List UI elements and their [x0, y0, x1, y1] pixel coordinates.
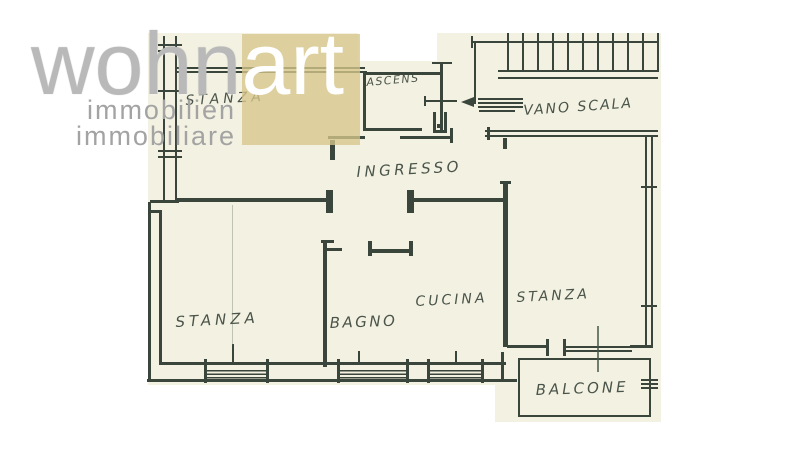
- room-label-stanza-left: STANZA: [175, 309, 259, 331]
- stair-tread: [582, 33, 584, 72]
- wall-segment: [363, 72, 366, 131]
- wall-segment: [474, 42, 476, 104]
- wall-segment: [641, 305, 657, 307]
- wall-segment: [641, 186, 657, 188]
- logo-wordmark-accent: art: [241, 14, 344, 113]
- wall-segment: [546, 339, 549, 356]
- wall-segment: [485, 135, 658, 137]
- wall-segment: [433, 130, 447, 133]
- stair-tread: [642, 33, 644, 72]
- wall-segment: [472, 41, 658, 43]
- wall-segment: [641, 379, 658, 381]
- wall-segment: [358, 351, 360, 363]
- logo-subtitle-italian: immobiliare: [40, 123, 236, 150]
- wall-segment: [507, 345, 547, 348]
- wall-segment: [565, 346, 632, 348]
- stair-tread: [597, 33, 599, 72]
- wall-segment: [455, 351, 457, 363]
- wall-segment: [232, 344, 234, 363]
- wall-segment: [148, 202, 151, 382]
- wall-segment: [437, 124, 443, 128]
- wall-segment: [326, 190, 333, 213]
- wall-segment: [500, 181, 511, 184]
- wall-segment: [503, 182, 508, 347]
- wall-segment: [498, 77, 658, 79]
- wall-segment: [406, 359, 409, 383]
- room-label-stairwell: VANO SCALA: [523, 95, 634, 119]
- wall-segment: [478, 98, 523, 100]
- wall-segment: [479, 110, 515, 112]
- wall-segment: [485, 130, 658, 132]
- wall-segment: [363, 128, 422, 131]
- wall-segment: [630, 345, 653, 348]
- wall-segment: [503, 138, 507, 149]
- wall-segment: [424, 96, 426, 106]
- stair-tread: [627, 33, 629, 72]
- wall-segment: [327, 248, 342, 251]
- wall-segment: [150, 200, 179, 203]
- wall-segment: [432, 62, 452, 64]
- logo-subtitle-german: immobilien: [40, 97, 236, 124]
- stair-tread: [612, 33, 614, 72]
- wall-segment: [565, 350, 632, 352]
- wall-segment: [427, 359, 430, 383]
- wall-segment: [409, 241, 413, 256]
- wall-segment: [158, 156, 182, 158]
- wall-segment: [651, 137, 653, 347]
- wall-segment: [450, 128, 453, 143]
- room-label-balcony: BALCONE: [535, 378, 628, 399]
- wall-segment: [363, 72, 443, 75]
- stair-tread: [507, 33, 509, 72]
- scanned-floorplan-image: STANZA ASCENS VANO SCALA INGRESSO STANZA…: [0, 0, 800, 450]
- wall-segment: [471, 36, 473, 48]
- room-label-kitchen: CUCINA: [415, 290, 488, 310]
- room-label-stanza-right: STANZA: [516, 286, 590, 306]
- wall-segment: [204, 359, 207, 383]
- wall-segment: [413, 198, 505, 202]
- wall-segment: [159, 362, 506, 365]
- wall-segment: [177, 198, 327, 202]
- wall-segment: [266, 359, 269, 383]
- wall-segment: [323, 241, 327, 367]
- stair-tread: [537, 33, 539, 72]
- wall-segment: [321, 240, 334, 243]
- wall-segment: [159, 213, 162, 364]
- wall-segment: [597, 326, 599, 372]
- wall-segment: [478, 106, 523, 108]
- wall-segment: [487, 127, 490, 140]
- wall-segment: [481, 359, 484, 383]
- wall-segment: [501, 352, 504, 379]
- stair-tread: [552, 33, 554, 72]
- room-label-bathroom: BAGNO: [329, 312, 397, 332]
- wall-segment: [400, 136, 452, 139]
- stair-tread: [567, 33, 569, 72]
- wall-segment: [641, 387, 658, 389]
- wall-segment: [232, 205, 233, 345]
- window-hatch: [428, 370, 482, 380]
- wall-segment: [368, 241, 372, 256]
- wall-segment: [424, 100, 457, 102]
- wall-segment: [337, 359, 340, 383]
- wall-segment: [641, 383, 658, 385]
- wall-segment: [478, 102, 523, 104]
- stair-tread: [657, 33, 659, 72]
- stair-tread: [522, 33, 524, 72]
- wall-segment: [371, 249, 409, 253]
- stair-direction-arrow-icon: [461, 97, 474, 107]
- room-label-entrance: INGRESSO: [356, 158, 462, 181]
- window-hatch: [205, 370, 268, 380]
- wall-segment: [645, 137, 647, 347]
- wall-segment: [440, 62, 443, 131]
- window-hatch: [338, 370, 408, 380]
